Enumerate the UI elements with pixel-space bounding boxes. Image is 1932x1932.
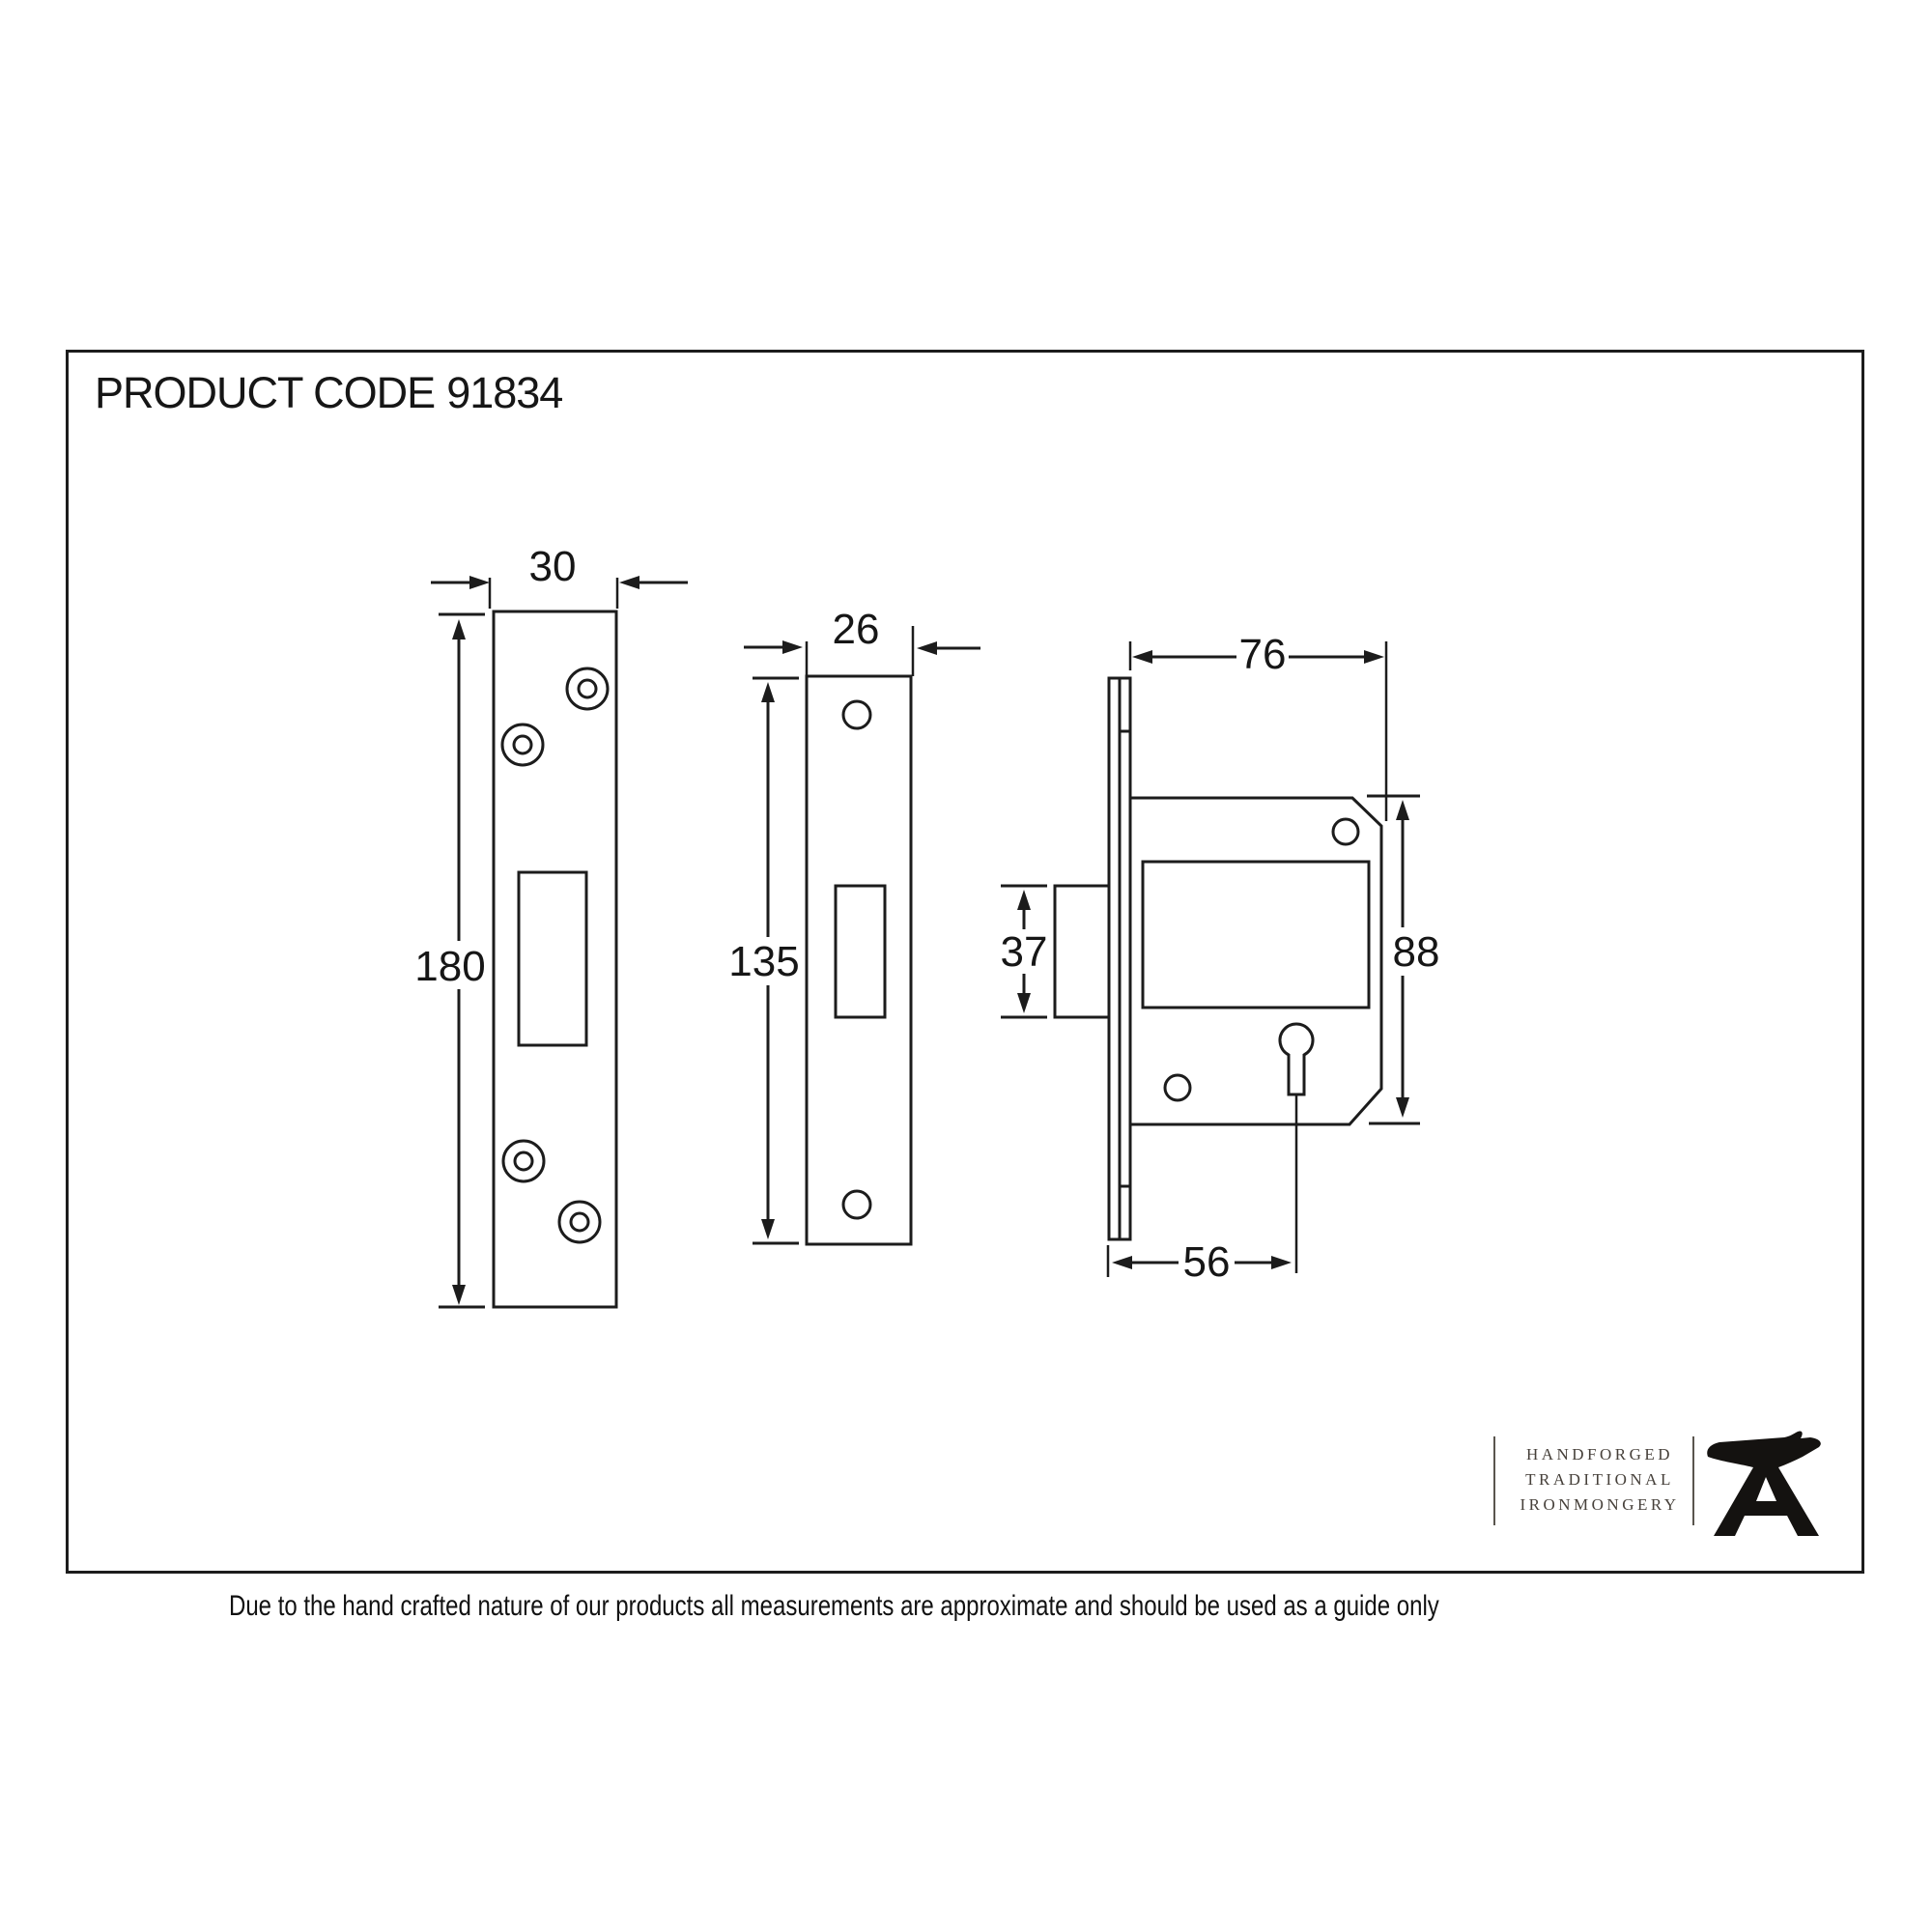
logo-line-2: TRADITIONAL xyxy=(1505,1467,1694,1492)
dim-label-forend-width: 30 xyxy=(529,543,577,590)
logo-line-1: HANDFORGED xyxy=(1505,1442,1694,1467)
dim-forend-width: 30 xyxy=(431,543,688,609)
strike-plate-drawing: 26 135 xyxy=(726,606,980,1244)
forend-latch-hole xyxy=(519,872,586,1045)
strike-outline xyxy=(807,676,911,1244)
dim-bolt-height: 37 xyxy=(997,886,1051,1017)
brand-logo: HANDFORGED TRADITIONAL IRONMONGERY xyxy=(1493,1431,1832,1542)
dim-label-bolt-height: 37 xyxy=(1001,928,1048,976)
lock-case-drawing: 76 88 37 xyxy=(997,631,1443,1286)
disclaimer-text: Due to the hand crafted nature of our pr… xyxy=(229,1590,1439,1623)
logo-left-rule xyxy=(1493,1436,1495,1525)
dim-label-strike-width: 26 xyxy=(833,606,880,653)
case-outline xyxy=(1130,798,1381,1124)
dim-forend-height: 180 xyxy=(414,614,485,1307)
case-screw-hole xyxy=(1165,1075,1190,1100)
forend-plate-drawing: 30 180 xyxy=(414,543,688,1307)
dim-strike-width: 26 xyxy=(744,606,980,676)
case-inner-panel xyxy=(1143,862,1369,1008)
keyhole xyxy=(1280,1024,1313,1094)
technical-drawing: 30 180 xyxy=(0,0,1932,1932)
dim-label-backset: 56 xyxy=(1183,1238,1231,1286)
dim-label-strike-height: 135 xyxy=(728,938,799,985)
forend-screw-hole xyxy=(502,724,543,765)
logo-line-3: IRONMONGERY xyxy=(1505,1492,1694,1518)
strike-screw-hole xyxy=(843,1191,870,1218)
dim-label-case-depth: 76 xyxy=(1239,631,1287,678)
forend-screw-hole xyxy=(503,1141,544,1181)
strike-latch-hole xyxy=(836,886,885,1017)
dim-case-depth: 76 xyxy=(1130,631,1386,821)
anvil-icon xyxy=(1702,1431,1828,1539)
forend-screw-hole xyxy=(567,668,608,709)
forend-screw-hole xyxy=(559,1202,600,1242)
case-deadbolt xyxy=(1055,886,1109,1017)
dim-strike-height: 135 xyxy=(726,678,804,1243)
dim-label-case-height: 88 xyxy=(1393,928,1440,976)
case-screw-hole xyxy=(1333,819,1358,844)
dim-label-forend-height: 180 xyxy=(414,943,485,990)
logo-wordmark: HANDFORGED TRADITIONAL IRONMONGERY xyxy=(1505,1442,1694,1518)
dim-case-height: 88 xyxy=(1367,796,1443,1123)
product-spec-sheet: PRODUCT CODE91834 xyxy=(0,0,1932,1932)
dim-backset: 56 xyxy=(1108,1238,1292,1286)
strike-screw-hole xyxy=(843,701,870,728)
forend-outline xyxy=(494,611,616,1307)
